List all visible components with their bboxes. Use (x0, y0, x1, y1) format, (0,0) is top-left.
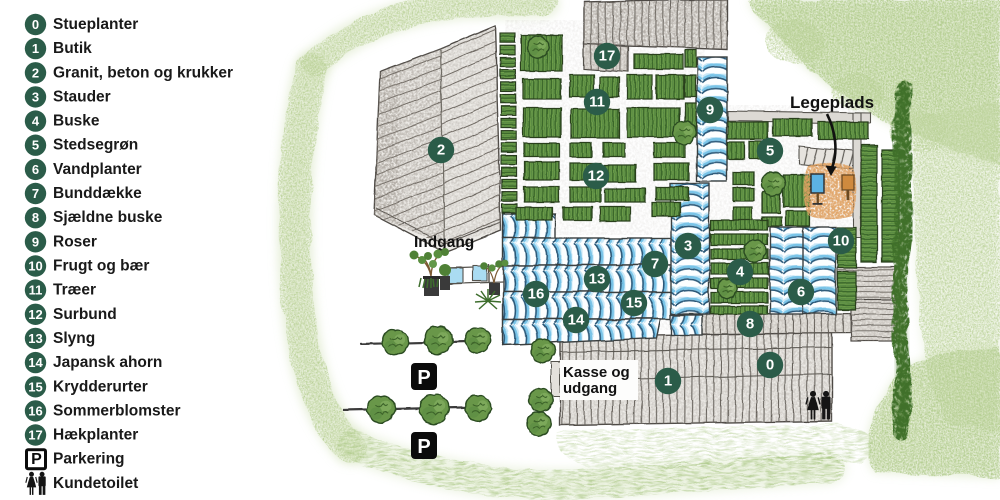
svg-text:Bunddække: Bunddække (53, 185, 142, 202)
svg-text:12: 12 (588, 168, 605, 185)
svg-text:15: 15 (28, 379, 42, 394)
svg-text:10: 10 (833, 233, 850, 250)
svg-text:6: 6 (32, 162, 39, 177)
svg-text:Japansk ahorn: Japansk ahorn (53, 354, 162, 371)
svg-text:Træer: Træer (53, 282, 96, 299)
svg-text:11: 11 (589, 94, 605, 111)
svg-text:7: 7 (32, 186, 39, 201)
svg-text:P: P (417, 367, 430, 389)
svg-text:4: 4 (32, 114, 40, 129)
svg-text:Slyng: Slyng (53, 330, 95, 347)
svg-text:6: 6 (797, 284, 805, 301)
svg-text:Kundetoilet: Kundetoilet (53, 475, 138, 492)
svg-text:2: 2 (32, 65, 39, 80)
svg-text:17: 17 (28, 428, 42, 443)
svg-text:1: 1 (32, 41, 39, 56)
svg-text:Roser: Roser (53, 233, 97, 250)
svg-text:Surbund: Surbund (53, 306, 117, 323)
svg-text:Stauder: Stauder (53, 88, 111, 105)
svg-text:15: 15 (626, 295, 643, 312)
svg-text:Legeplads: Legeplads (790, 93, 874, 112)
svg-text:Frugt og bær: Frugt og bær (53, 258, 149, 275)
svg-text:7: 7 (651, 256, 659, 273)
svg-text:udgang: udgang (563, 380, 617, 397)
svg-text:3: 3 (32, 89, 39, 104)
svg-text:5: 5 (766, 143, 774, 160)
svg-text:P: P (31, 451, 42, 468)
svg-text:Parkering: Parkering (53, 451, 125, 468)
svg-text:9: 9 (706, 102, 714, 119)
svg-text:14: 14 (568, 312, 585, 329)
svg-text:Hækplanter: Hækplanter (53, 427, 138, 444)
svg-text:0: 0 (32, 17, 39, 32)
svg-text:Sommerblomster: Sommerblomster (53, 402, 180, 419)
svg-text:Vandplanter: Vandplanter (53, 161, 142, 178)
svg-text:16: 16 (28, 403, 42, 418)
svg-text:13: 13 (28, 331, 42, 346)
svg-text:14: 14 (28, 355, 43, 370)
svg-text:13: 13 (589, 271, 606, 288)
svg-text:5: 5 (32, 138, 39, 153)
svg-text:17: 17 (599, 48, 616, 65)
svg-text:11: 11 (29, 283, 43, 298)
svg-text:Sjældne buske: Sjældne buske (53, 209, 163, 226)
svg-text:Kasse og: Kasse og (563, 364, 630, 381)
svg-text:12: 12 (28, 307, 42, 322)
svg-text:2: 2 (437, 142, 445, 159)
svg-text:10: 10 (28, 259, 42, 274)
svg-text:1: 1 (664, 373, 672, 390)
svg-text:Stedsegrøn: Stedsegrøn (53, 137, 138, 154)
svg-text:P: P (417, 436, 430, 458)
svg-text:8: 8 (746, 316, 754, 333)
svg-text:Krydderurter: Krydderurter (53, 378, 148, 395)
svg-text:Buske: Buske (53, 113, 100, 130)
svg-text:4: 4 (736, 264, 745, 281)
svg-text:Stueplanter: Stueplanter (53, 16, 138, 33)
svg-text:16: 16 (528, 286, 545, 303)
svg-text:8: 8 (32, 210, 39, 225)
svg-text:0: 0 (766, 357, 774, 374)
svg-text:3: 3 (684, 238, 692, 255)
svg-text:Granit, beton og krukker: Granit, beton og krukker (53, 64, 233, 81)
svg-text:9: 9 (32, 234, 39, 249)
svg-text:Butik: Butik (53, 40, 92, 57)
